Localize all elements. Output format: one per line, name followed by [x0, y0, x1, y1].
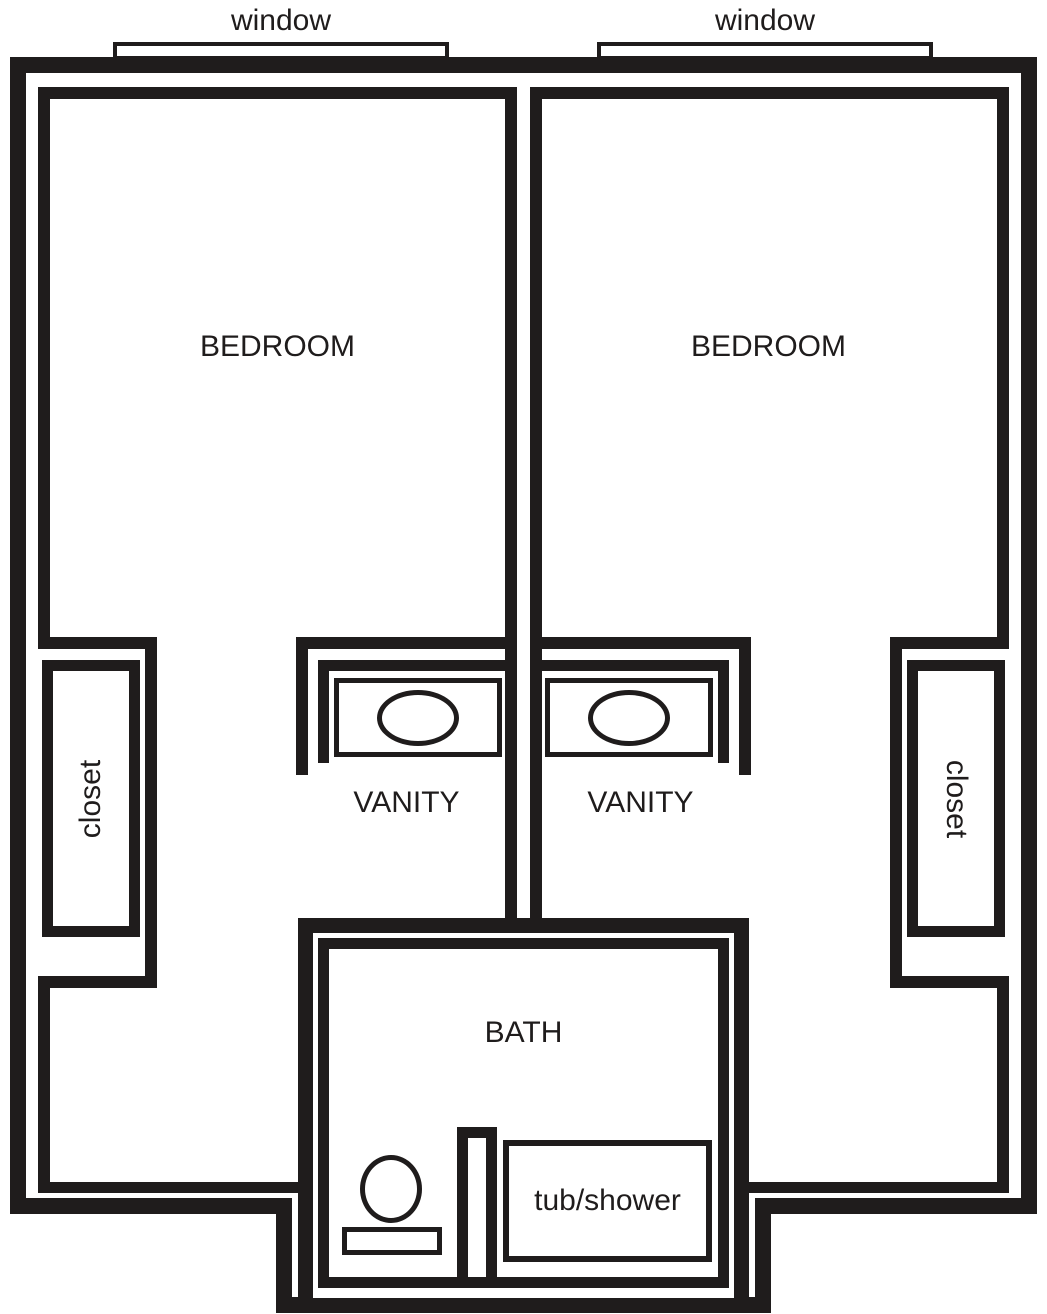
left-closet-wall-bottom — [38, 976, 157, 988]
right-hall-wall-bottom — [749, 1182, 1009, 1193]
right-vanity-wall-right — [739, 637, 751, 775]
right-closet-wall-top — [890, 637, 1009, 649]
vanity-left-counter — [334, 678, 502, 757]
bath-partition-gap — [468, 1138, 486, 1277]
closet-right-box: closet — [907, 660, 1005, 937]
bedroom-label-right: BEDROOM — [541, 330, 996, 364]
closet-label-left: closet — [74, 759, 108, 837]
outer-wall-right — [1021, 57, 1037, 1214]
outer-wall-top — [10, 57, 1037, 73]
vanity-label-right: VANITY — [530, 786, 751, 820]
window-label-left: window — [113, 4, 449, 38]
right-vanity-lining-right — [718, 660, 729, 763]
left-wall-lower — [38, 988, 50, 1193]
left-bedroom-wall-left — [38, 87, 50, 649]
right-closet-wall-bottom — [890, 976, 1009, 988]
right-vanity-wall-top — [530, 637, 751, 649]
left-vanity-wall-left — [296, 637, 308, 775]
right-vanity-lining-top — [542, 660, 729, 671]
outer-wall-bottom-left — [10, 1198, 276, 1214]
left-vanity-lining-top — [318, 660, 505, 671]
right-bedroom-wall-right — [997, 87, 1009, 649]
sink-left-icon — [377, 690, 459, 746]
outer-wall-bottom-right — [771, 1198, 1037, 1214]
vanity-label-left: VANITY — [296, 786, 517, 820]
toilet-icon — [360, 1155, 422, 1223]
tub-shower-label: tub/shower — [534, 1184, 681, 1218]
vanity-right-counter — [545, 678, 713, 757]
window-label-right: window — [597, 4, 933, 38]
outer-wall-left — [10, 57, 26, 1214]
left-bedroom-wall-top — [38, 87, 517, 99]
left-closet-wall-top — [38, 637, 157, 649]
right-closet-wall-left — [890, 649, 902, 988]
right-wall-lower — [997, 988, 1009, 1193]
left-vanity-wall-top — [296, 637, 517, 649]
closet-left-box: closet — [42, 660, 140, 937]
toilet-base-icon — [342, 1227, 442, 1255]
closet-label-right: closet — [939, 759, 973, 837]
left-closet-wall-right — [145, 649, 157, 988]
tub-shower-box: tub/shower — [503, 1140, 712, 1262]
bath-label: BATH — [329, 1016, 718, 1050]
left-hall-wall-bottom — [38, 1182, 298, 1193]
bedroom-label-left: BEDROOM — [50, 330, 505, 364]
outer-wall-step-right — [755, 1198, 771, 1313]
sink-right-icon — [588, 690, 670, 746]
floor-plan: window window closet closet — [0, 0, 1047, 1314]
right-bedroom-wall-top — [530, 87, 1009, 99]
left-vanity-lining-left — [318, 660, 329, 763]
outer-wall-step-left — [276, 1198, 292, 1313]
